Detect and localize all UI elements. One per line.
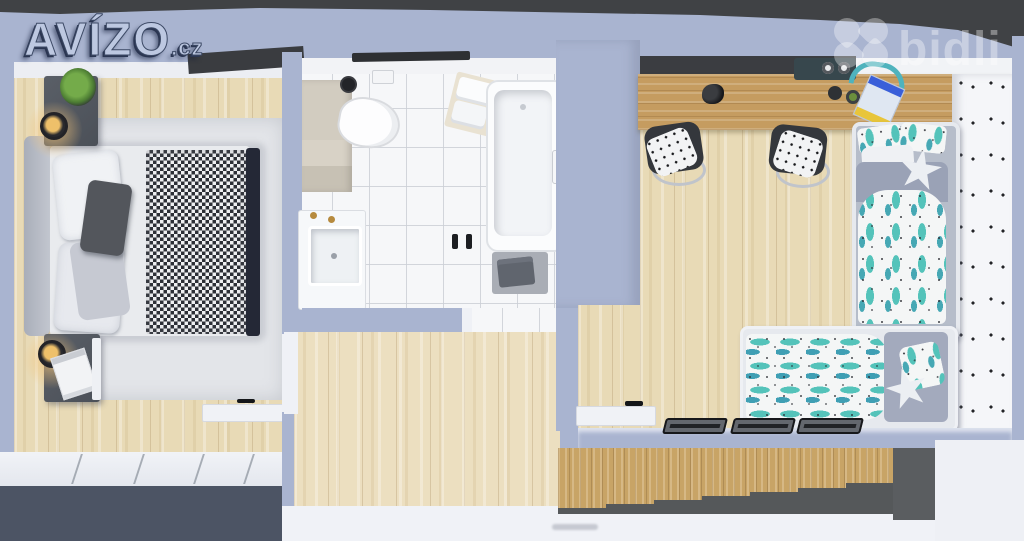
polka-accent-wall bbox=[952, 74, 1012, 436]
shower-door-handle bbox=[466, 234, 472, 249]
desk-cup bbox=[828, 86, 842, 100]
bathtub-basin bbox=[494, 90, 552, 236]
wardrobe-seam bbox=[193, 454, 205, 484]
bedroom bbox=[0, 0, 302, 541]
sink-drain bbox=[331, 253, 337, 259]
wall-lamp-top bbox=[40, 112, 68, 140]
kids-left-wall-block bbox=[556, 40, 640, 308]
wardrobe-front bbox=[0, 486, 282, 541]
avizo-logo-suffix: .cz bbox=[171, 35, 203, 60]
bidli-logo-text: bidli bbox=[898, 22, 1002, 77]
avizo-logo: AVÍZO.cz bbox=[24, 12, 204, 66]
right-outer-wall bbox=[1012, 36, 1024, 438]
tiny-watermark bbox=[552, 524, 598, 530]
bed-footboard bbox=[246, 148, 260, 336]
wardrobe-seam bbox=[243, 454, 255, 484]
bathroom bbox=[302, 40, 558, 340]
bidli-logo: bidli bbox=[830, 14, 1024, 84]
hallway-left-jamb bbox=[284, 332, 298, 414]
bedroom-console-shelf bbox=[202, 404, 286, 422]
washbasin-sink bbox=[308, 226, 362, 286]
towel-stack bbox=[451, 100, 489, 128]
gold-tap bbox=[310, 212, 317, 219]
book-edge bbox=[92, 338, 101, 400]
toilet-brush bbox=[342, 78, 355, 91]
houndstooth-blanket bbox=[146, 150, 246, 334]
stair-void bbox=[893, 448, 937, 520]
bottom-right-wall bbox=[935, 440, 1024, 541]
bidli-petals-icon bbox=[830, 16, 890, 70]
console-handle bbox=[625, 401, 643, 406]
wall-frame bbox=[662, 418, 728, 434]
desk-lamp bbox=[702, 84, 724, 104]
gold-tap bbox=[328, 216, 335, 223]
hallway-floor bbox=[294, 332, 560, 508]
console-handle bbox=[237, 399, 255, 403]
teal-print-duvet bbox=[746, 334, 888, 420]
avizo-logo-text: AVÍZO bbox=[24, 13, 171, 65]
kids-console-shelf bbox=[576, 406, 656, 426]
wall-frame bbox=[796, 418, 864, 434]
headboard bbox=[24, 136, 50, 336]
shower-door-handle bbox=[452, 234, 458, 249]
floorplan-render: AVÍZO.cz bidli bbox=[0, 0, 1024, 541]
wall-frame bbox=[730, 418, 796, 434]
folded-towel bbox=[497, 256, 536, 288]
wardrobe-seam bbox=[133, 454, 145, 484]
tub-drain bbox=[520, 104, 526, 110]
paper-holder bbox=[372, 70, 394, 84]
wardrobe-top bbox=[0, 452, 282, 486]
wardrobe-seam bbox=[71, 454, 83, 484]
plant bbox=[60, 68, 96, 106]
cactus-duvet bbox=[858, 190, 946, 324]
